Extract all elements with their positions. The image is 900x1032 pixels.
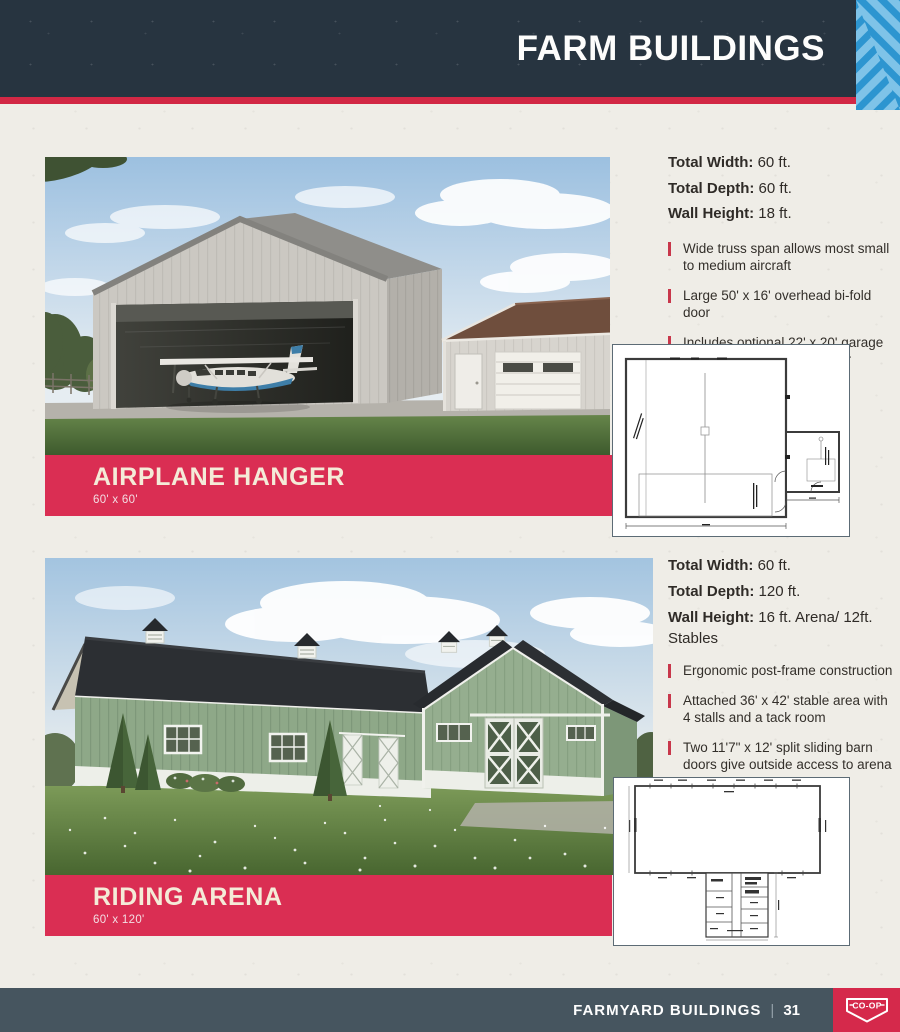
feature-list: Ergonomic post-frame construction Attach… bbox=[668, 662, 898, 774]
floor-plan-drawing bbox=[614, 778, 846, 942]
page-title: FARM BUILDINGS bbox=[517, 31, 825, 66]
corner-stripe-pattern bbox=[856, 0, 900, 110]
airplane-hanger-floor-plan bbox=[612, 344, 850, 537]
riding-arena-rendering bbox=[45, 558, 653, 875]
airplane-hanger-banner: AIRPLANE HANGER 60' x 60' bbox=[45, 455, 612, 516]
spec-row: Wall Height: 16 ft. Arena/ 12ft. Stables bbox=[668, 607, 898, 649]
page-header: FARM BUILDINGS bbox=[0, 0, 856, 97]
footer-separator: | bbox=[770, 1002, 774, 1019]
riding-arena-floor-plan bbox=[613, 777, 850, 946]
spec-row: Wall Height: 18 ft. bbox=[668, 201, 898, 227]
riding-arena-photo bbox=[45, 558, 653, 875]
bullet-bar bbox=[668, 664, 671, 678]
spec-row: Total Width: 60 ft. bbox=[668, 553, 898, 579]
header-red-rule bbox=[0, 97, 856, 104]
feature-item: Attached 36' x 42' stable area with 4 st… bbox=[668, 692, 898, 727]
footer-text: FARMYARD BUILDINGS | 31 bbox=[573, 988, 800, 1032]
spec-row: Total Depth: 120 ft. bbox=[668, 579, 898, 605]
catalog-page: FARM BUILDINGS bbox=[0, 0, 900, 1032]
building-dimensions: 60' x 120' bbox=[93, 914, 612, 926]
feature-item: Ergonomic post-frame construction bbox=[668, 662, 898, 680]
feature-item: Wide truss span allows most small to med… bbox=[668, 240, 898, 275]
spec-row: Total Depth: 60 ft. bbox=[668, 176, 898, 202]
bullet-bar bbox=[668, 694, 671, 708]
bullet-bar bbox=[668, 741, 671, 755]
bullet-bar bbox=[668, 242, 671, 256]
coop-logo-block: CO-OP bbox=[833, 988, 900, 1032]
riding-arena-specs: Total Width: 60 ft. Total Depth: 120 ft.… bbox=[668, 553, 898, 786]
building-dimensions: 60' x 60' bbox=[93, 494, 612, 506]
coop-logo-text: CO-OP bbox=[852, 1001, 881, 1011]
page-footer: FARMYARD BUILDINGS | 31 CO-OP bbox=[0, 988, 900, 1032]
diagonal-stripes-icon bbox=[856, 0, 900, 110]
footer-label: FARMYARD BUILDINGS bbox=[573, 1002, 761, 1019]
spec-row: Total Width: 60 ft. bbox=[668, 150, 898, 176]
coop-logo-icon: CO-OP bbox=[844, 996, 890, 1024]
riding-arena-banner: RIDING ARENA 60' x 120' bbox=[45, 875, 612, 936]
building-name: RIDING ARENA bbox=[93, 884, 612, 912]
feature-item: Two 11'7" x 12' split sliding barn doors… bbox=[668, 739, 898, 774]
feature-item: Large 50' x 16' overhead bi-fold door bbox=[668, 287, 898, 322]
bullet-bar bbox=[668, 289, 671, 303]
airplane-hanger-photo bbox=[45, 157, 610, 455]
airplane-hanger-rendering bbox=[45, 157, 610, 455]
floor-plan-drawing bbox=[613, 345, 846, 533]
building-name: AIRPLANE HANGER bbox=[93, 464, 612, 492]
page-number: 31 bbox=[783, 1002, 800, 1019]
